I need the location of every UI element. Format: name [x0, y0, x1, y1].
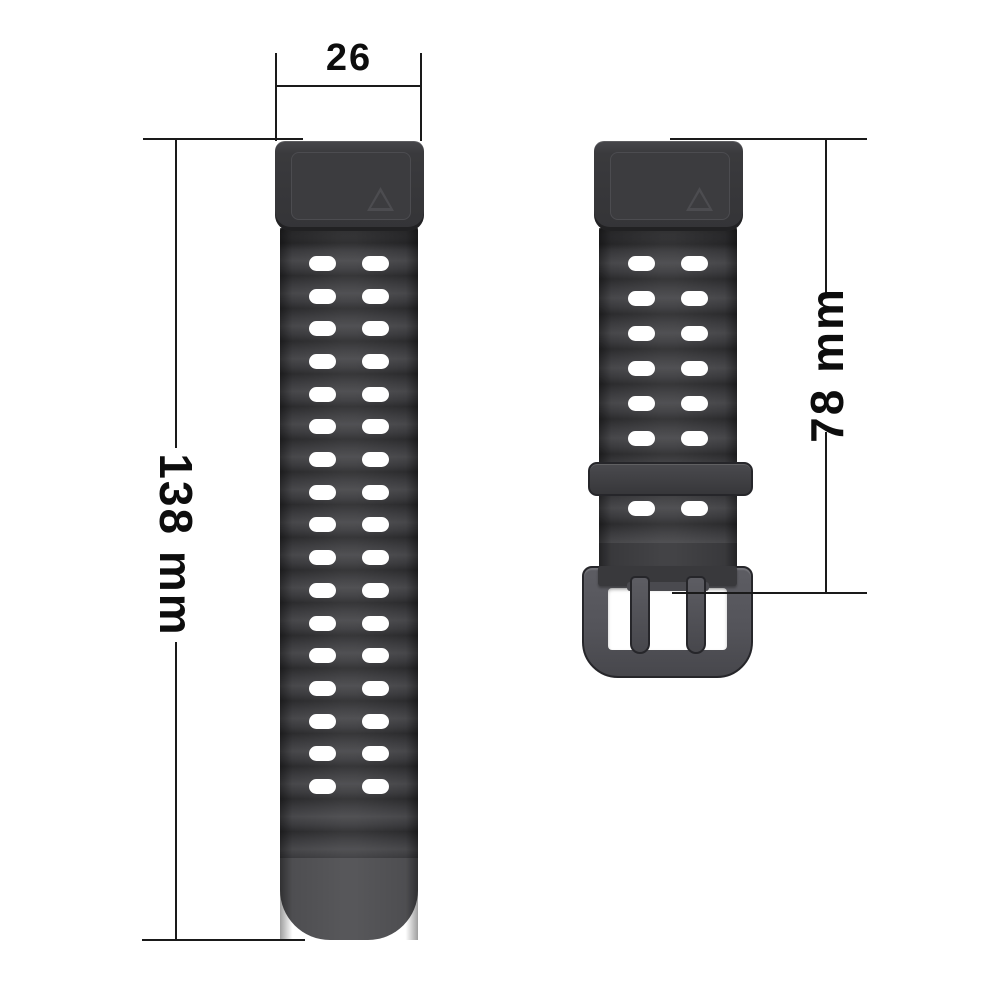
vent-hole	[309, 452, 336, 467]
connector-panel	[610, 152, 730, 220]
buckle-strap-lug-connector	[594, 141, 743, 231]
triangle-mark-icon	[367, 187, 394, 211]
vent-hole	[309, 616, 336, 631]
vent-hole	[628, 501, 655, 516]
vent-hole	[309, 419, 336, 434]
vent-hole	[309, 289, 336, 304]
buckle-opening	[608, 588, 727, 650]
vent-hole	[362, 681, 389, 696]
vent-hole	[362, 321, 389, 336]
vent-hole	[362, 289, 389, 304]
buckle-prong	[686, 576, 706, 654]
triangle-mark-icon	[686, 187, 713, 211]
vent-hole	[309, 517, 336, 532]
vent-hole	[309, 321, 336, 336]
vent-hole	[309, 714, 336, 729]
vent-hole	[362, 387, 389, 402]
vent-hole	[362, 550, 389, 565]
vent-hole	[681, 256, 708, 271]
keeper-loop	[588, 462, 753, 496]
vent-hole	[362, 354, 389, 369]
buckle-strap	[599, 228, 737, 610]
vent-hole	[628, 396, 655, 411]
vent-hole	[309, 779, 336, 794]
vent-hole	[628, 361, 655, 376]
long-strap-length-label: 138 mm	[149, 453, 203, 636]
vent-hole	[628, 326, 655, 341]
connector-panel	[291, 152, 411, 220]
vent-hole	[362, 256, 389, 271]
vent-hole	[628, 291, 655, 306]
buckle-strap-vent-holes	[599, 228, 737, 610]
vent-hole	[362, 616, 389, 631]
vent-hole	[681, 431, 708, 446]
vent-hole	[309, 746, 336, 761]
long-strap	[280, 228, 418, 940]
vent-hole	[681, 396, 708, 411]
long-strap-top-tick	[143, 138, 303, 140]
vent-hole	[309, 648, 336, 663]
buckle-strap-top-tick	[670, 138, 867, 140]
vent-hole	[681, 291, 708, 306]
lug-width-dimension-line	[275, 85, 422, 87]
vent-hole	[362, 517, 389, 532]
diagram-canvas: 26 138 mm 78 mm	[0, 0, 1000, 1000]
vent-hole	[309, 256, 336, 271]
lug-width-label: 26	[276, 34, 422, 82]
long-strap-vent-holes	[280, 228, 418, 940]
vent-hole	[681, 326, 708, 341]
vent-hole	[362, 779, 389, 794]
vent-hole	[362, 648, 389, 663]
vent-hole	[309, 387, 336, 402]
buckle-strap-dimension-line-upper	[825, 138, 827, 298]
long-strap-lug-connector	[275, 141, 424, 231]
buckle-strap-bottom-tick	[672, 592, 867, 594]
vent-hole	[362, 714, 389, 729]
vent-hole	[362, 746, 389, 761]
vent-hole	[309, 681, 336, 696]
vent-hole	[362, 419, 389, 434]
vent-hole	[628, 431, 655, 446]
long-strap-bottom-tick	[142, 939, 305, 941]
buckle-strap-length-label: 78 mm	[800, 287, 854, 443]
vent-hole	[362, 485, 389, 500]
vent-hole	[681, 361, 708, 376]
vent-hole	[309, 485, 336, 500]
buckle-strap-dimension-line-lower	[825, 432, 827, 593]
vent-hole	[362, 452, 389, 467]
vent-hole	[309, 583, 336, 598]
long-strap-dimension-line-upper	[175, 138, 177, 448]
vent-hole	[681, 501, 708, 516]
vent-hole	[628, 256, 655, 271]
vent-hole	[362, 583, 389, 598]
vent-hole	[309, 354, 336, 369]
long-strap-dimension-line-lower	[175, 642, 177, 940]
vent-hole	[309, 550, 336, 565]
buckle-prong	[630, 576, 650, 654]
